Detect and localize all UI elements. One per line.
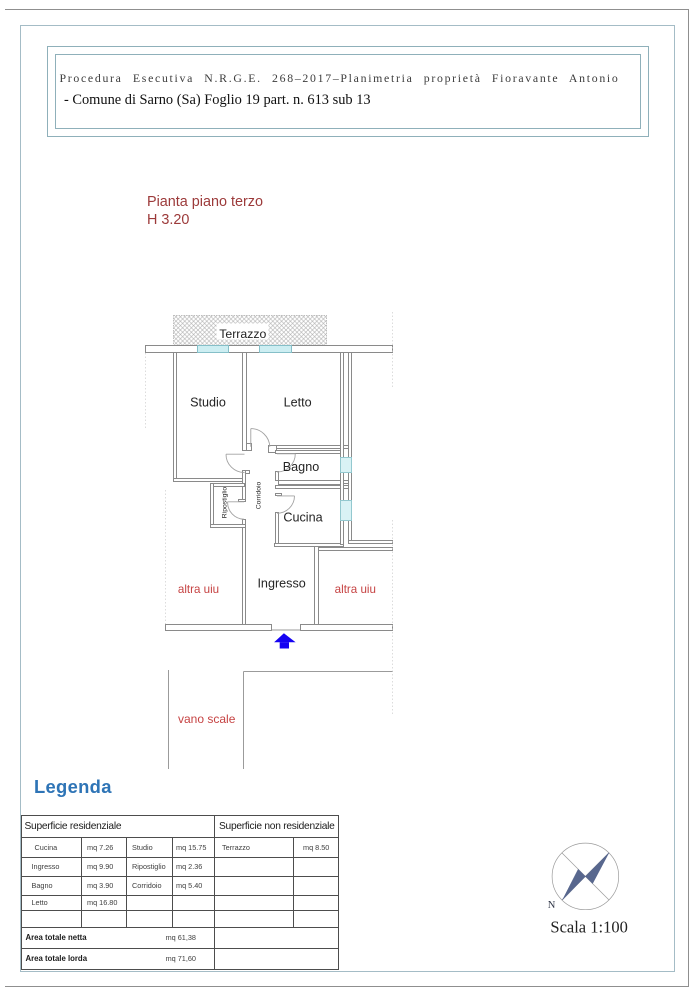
- svg-text:Bagno: Bagno: [283, 460, 319, 474]
- svg-text:Letto: Letto: [284, 395, 312, 409]
- svg-text:altra uiu: altra uiu: [335, 583, 376, 596]
- svg-text:Corridoio: Corridoio: [255, 481, 262, 509]
- svg-text:Studio: Studio: [190, 395, 226, 409]
- svg-text:Cucina: Cucina: [283, 511, 322, 525]
- svg-text:Terrazzo: Terrazzo: [219, 327, 266, 341]
- svg-text:N: N: [548, 900, 556, 911]
- svg-text:Ripostiglio: Ripostiglio: [222, 487, 229, 519]
- svg-text:Scala 1:100: Scala 1:100: [550, 918, 627, 937]
- svg-text:vano scale: vano scale: [178, 712, 236, 726]
- svg-text:Ingresso: Ingresso: [257, 577, 305, 591]
- svg-text:altra uiu: altra uiu: [178, 583, 219, 596]
